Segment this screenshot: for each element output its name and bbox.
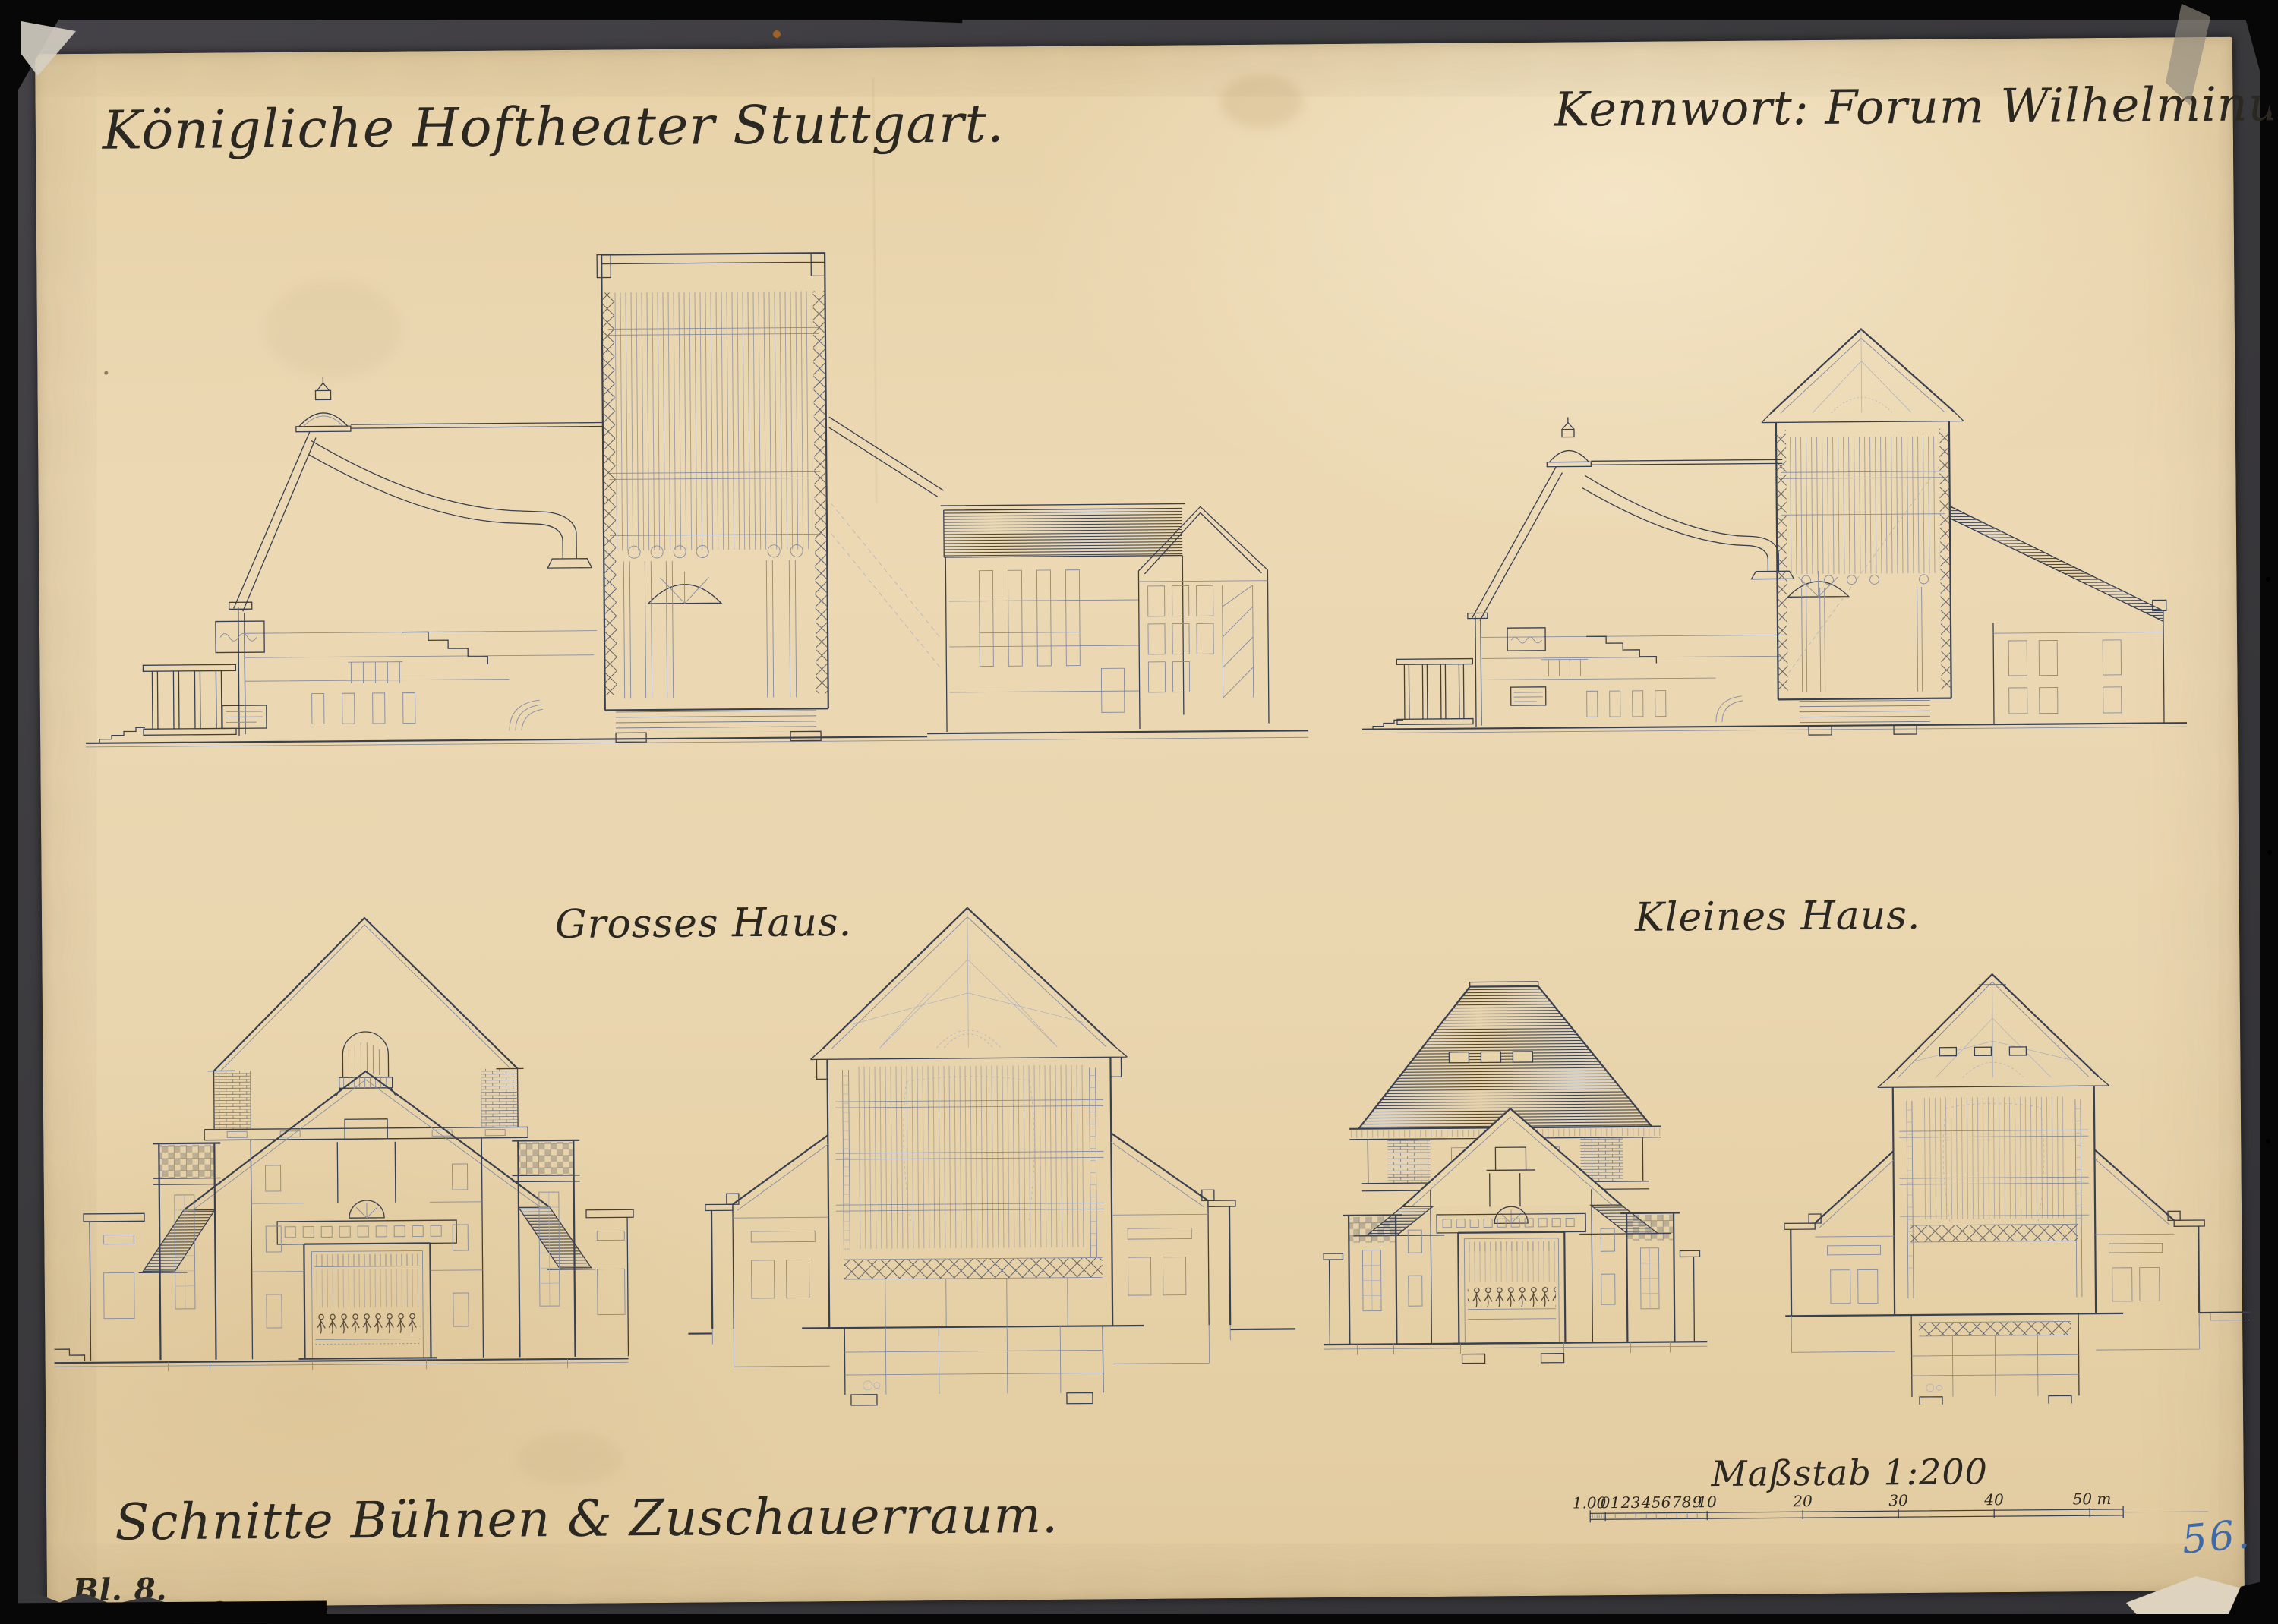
tape-nick-top-center	[1066, 0, 1096, 14]
sheet-subtitle: Schnitte Bühnen & Zuschauerraum.	[115, 1486, 1059, 1552]
bottom-left-black-edge	[0, 1600, 327, 1623]
paper-smudge	[516, 1431, 623, 1485]
proscenium	[1437, 1213, 1586, 1344]
ground-and-foundation	[1362, 714, 2187, 733]
tape-hole	[2266, 1139, 2270, 1143]
scanned-architectural-plan: { "page": { "title": "Königliche Hofthea…	[0, 0, 2278, 1622]
kleines-haus-stage-cross-section-drawing	[1783, 970, 2253, 1406]
sheet-title: Königliche Hoftheater Stuttgart.	[102, 92, 1005, 161]
stage-tower	[1866, 973, 2124, 1316]
backstage-wing	[829, 415, 1187, 733]
grosses-haus-longitudinal-section-drawing	[80, 241, 1311, 749]
grosses-haus-stage-cross-section-drawing	[685, 899, 1296, 1408]
under-stage-machinery	[712, 1325, 1231, 1406]
orange-speck	[773, 30, 781, 38]
scale-bar	[1584, 1503, 2214, 1531]
rear-wing	[1950, 504, 2185, 724]
fly-tower	[1761, 328, 1966, 735]
keyword-title: Kennwort: Forum Wilhelminum.	[1554, 77, 2136, 137]
stage-house-gable	[203, 916, 528, 1140]
paper-stain	[1219, 74, 1304, 128]
ground	[1324, 1342, 1707, 1364]
stage-tower	[799, 907, 1144, 1329]
label-kleines-haus: Kleines Haus.	[1635, 893, 1921, 941]
tape-hole	[2266, 577, 2270, 582]
tape-hole	[2267, 850, 2272, 855]
kleines-haus-auditorium-cross-section-drawing	[1321, 976, 1795, 1375]
kleines-haus-longitudinal-section-drawing	[1356, 313, 2191, 745]
drawing-sheet: Königliche Hoftheater Stuttgart. Kennwor…	[35, 37, 2245, 1608]
fly-tower	[597, 253, 828, 742]
entrance-portico	[1396, 659, 1473, 725]
scale-label: Maßstab 1:200	[1683, 1451, 2017, 1494]
under-stage-machinery	[1791, 1313, 2200, 1405]
proscenium	[277, 1220, 457, 1359]
tape-nick-top-center	[863, 0, 964, 23]
grosses-haus-auditorium-cross-section-drawing	[51, 912, 647, 1373]
